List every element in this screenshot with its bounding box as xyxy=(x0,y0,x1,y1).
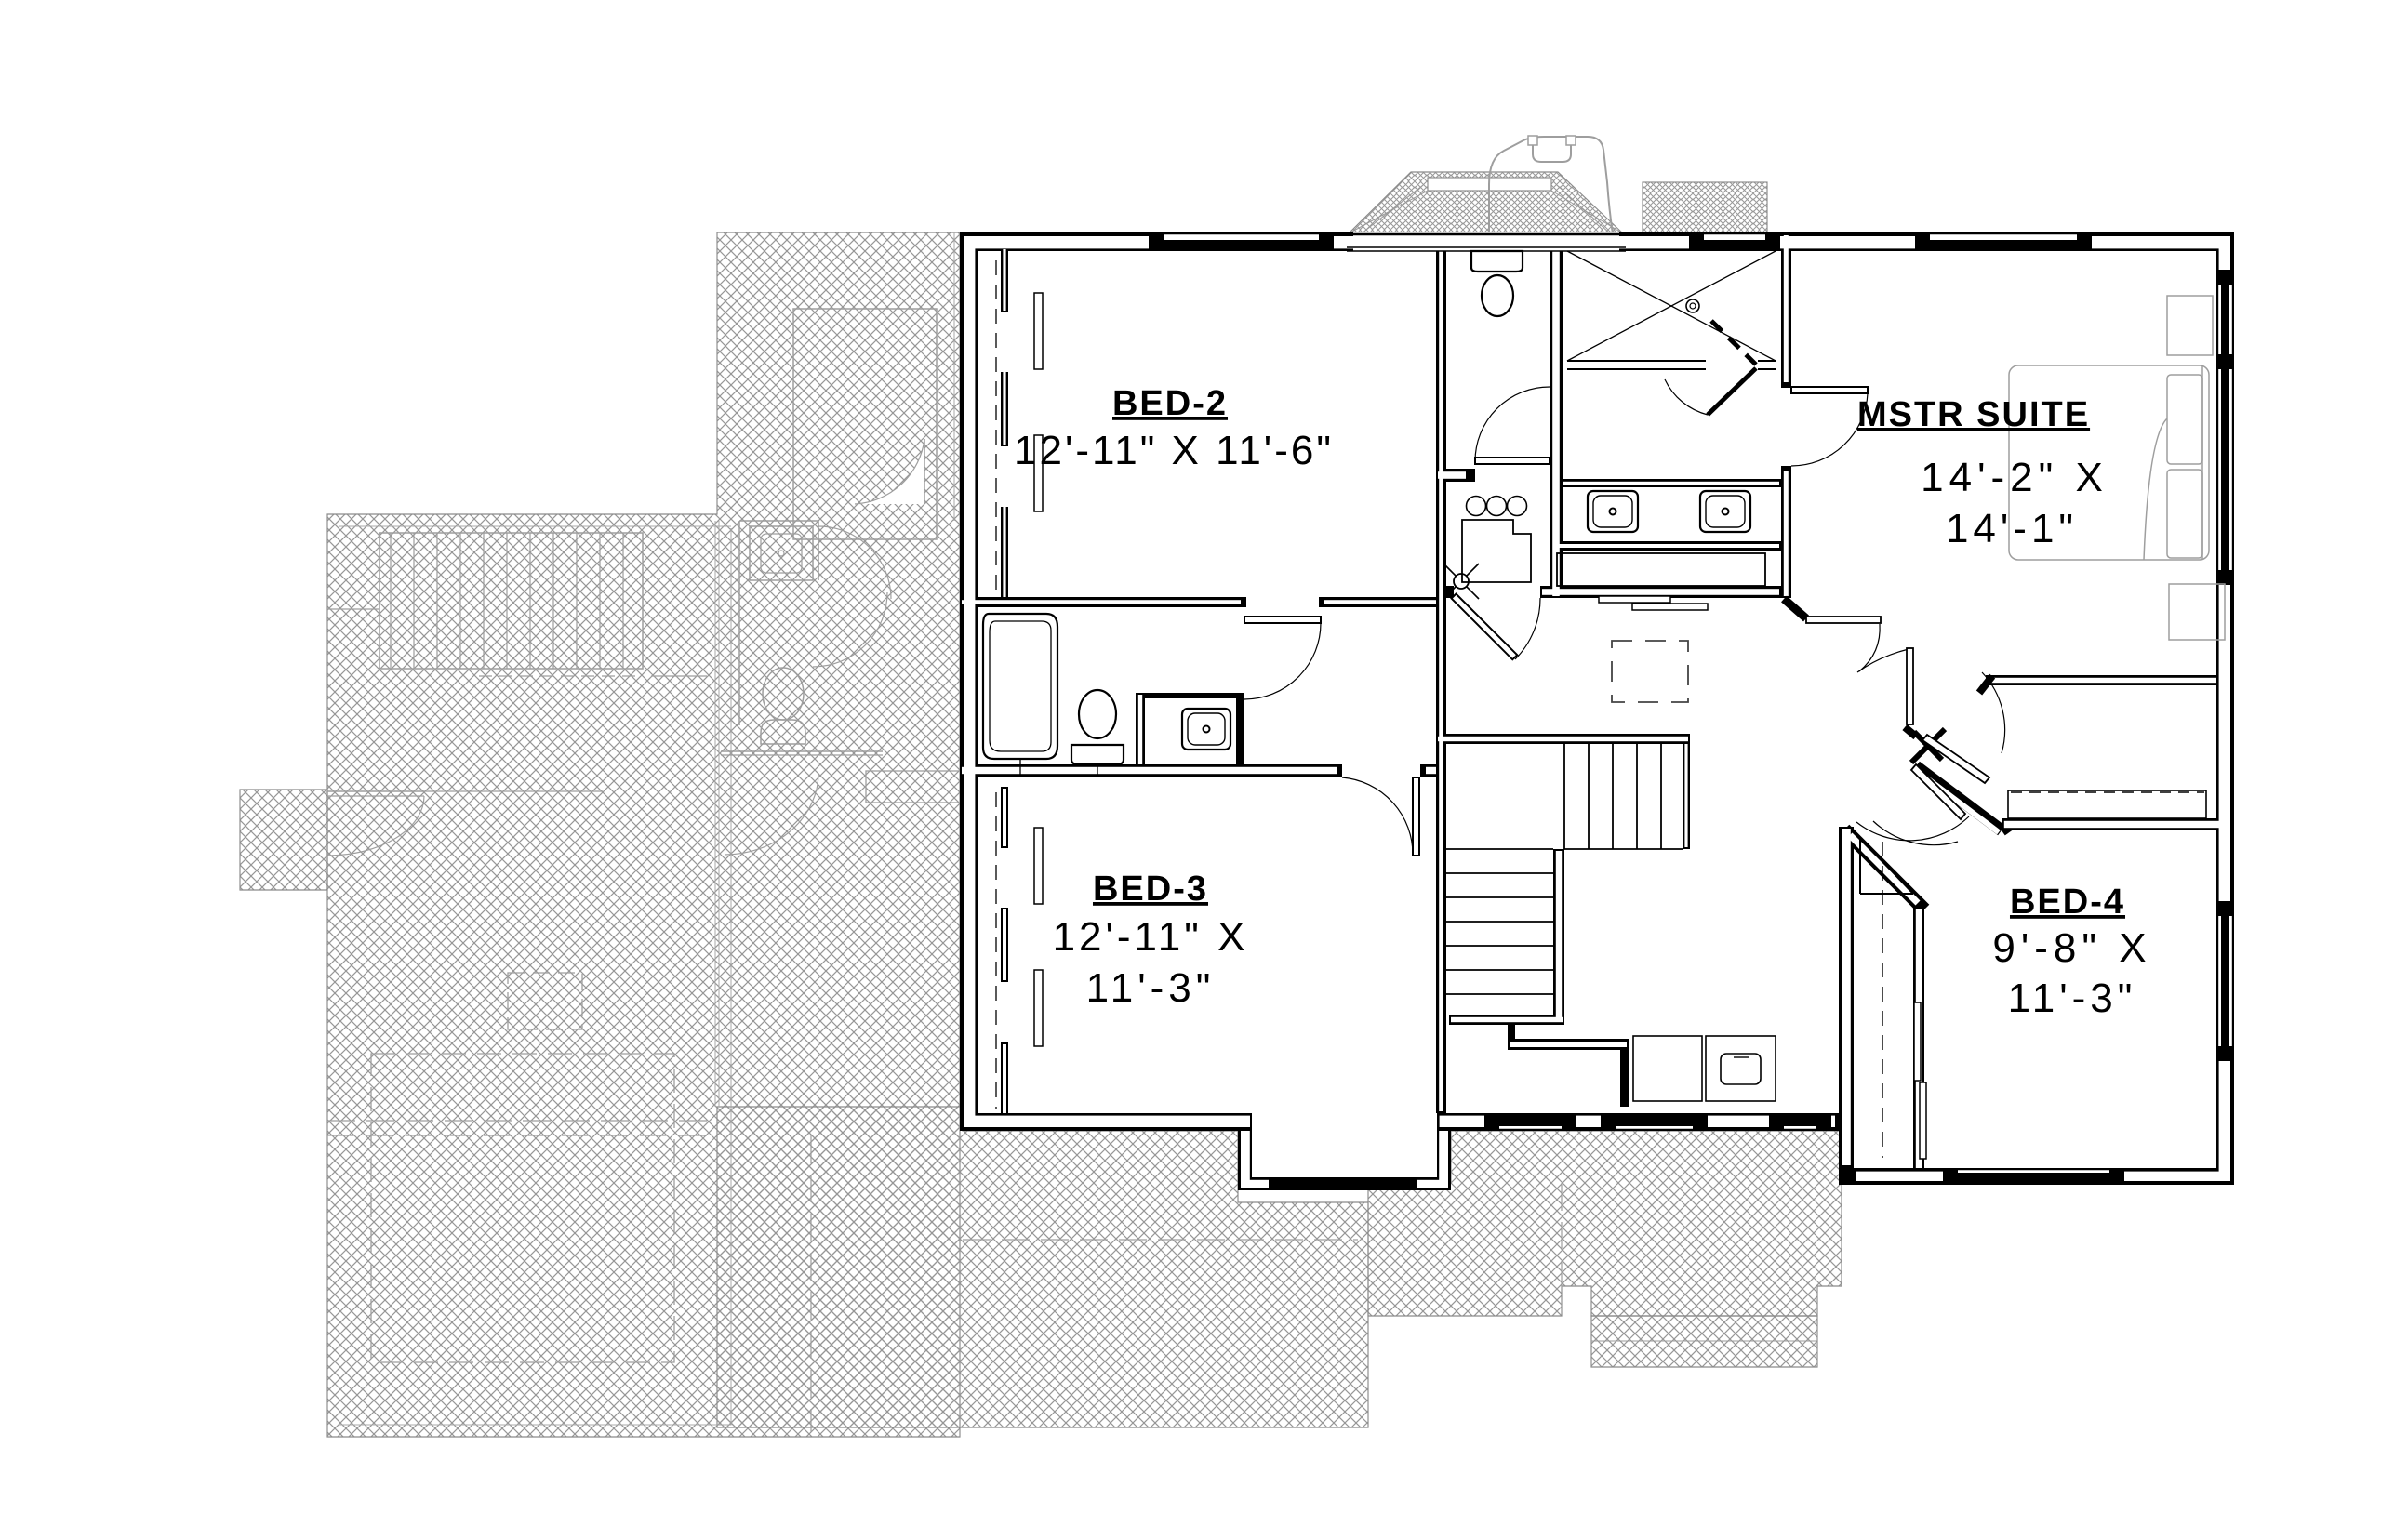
svg-text:11'-3": 11'-3" xyxy=(1086,965,1216,1011)
svg-text:BED-2: BED-2 xyxy=(1112,384,1228,423)
svg-text:12'-11" X: 12'-11" X xyxy=(1053,914,1249,960)
svg-text:9'-8" X: 9'-8" X xyxy=(1992,925,2151,971)
svg-text:MSTR SUITE: MSTR SUITE xyxy=(1857,395,2090,434)
svg-text:BED-3: BED-3 xyxy=(1093,870,1208,909)
svg-text:14'-1": 14'-1" xyxy=(1946,506,2078,551)
svg-text:BED-4: BED-4 xyxy=(2010,883,2125,922)
svg-text:12'-11" X 11'-6": 12'-11" X 11'-6" xyxy=(1014,428,1334,473)
svg-text:11'-3": 11'-3" xyxy=(2008,976,2137,1021)
svg-text:14'-2" X: 14'-2" X xyxy=(1921,455,2108,500)
